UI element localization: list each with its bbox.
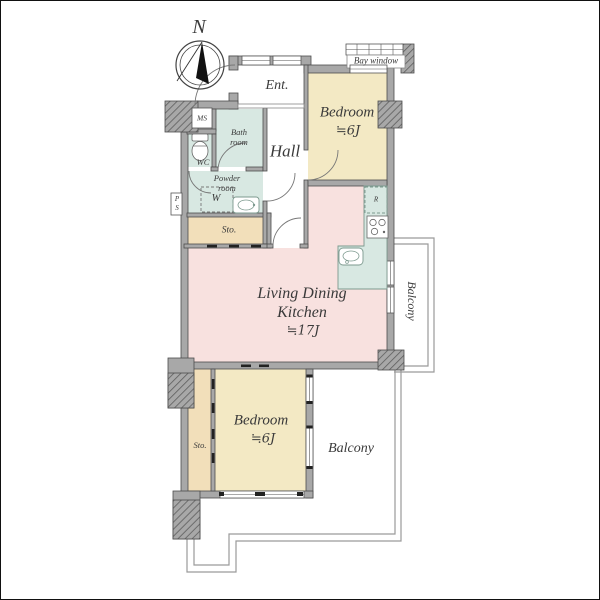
- bedroom-bottom-floor: [215, 369, 306, 491]
- wall-hall-bottom-b: [300, 244, 308, 248]
- washbasin-icon: [233, 197, 259, 213]
- ldk-label-line2: Kitchen: [277, 305, 327, 321]
- balcony-right-label: Balcony: [406, 281, 418, 320]
- wall-powder-top-a: [211, 167, 218, 171]
- wall-bedroom-top: [304, 65, 350, 73]
- wall-wc-bath: [212, 134, 216, 167]
- floor-plan-canvas: N Bay window Ent. Bedroom ≒6J Hall MS Ba…: [0, 0, 600, 600]
- wall-storage-right: [267, 213, 271, 248]
- pipe-space-label: PS: [173, 195, 180, 213]
- powder-room-label-line2: room: [218, 184, 236, 193]
- threshold-entrance-hall: [238, 104, 304, 108]
- balcony-bottom-label: Balcony: [328, 442, 374, 456]
- hall-label: Hall: [270, 143, 300, 160]
- compass-north-label: N: [192, 17, 205, 37]
- storage-upper-label: Sto.: [222, 226, 237, 236]
- wall-ldk-bottom: [184, 362, 394, 369]
- wall-hall-bedroom-b: [304, 180, 308, 248]
- ldk-label-line1: Living Dining: [257, 286, 346, 302]
- wall-entrance-left-stub-a: [229, 56, 238, 70]
- powder-room-label-line1: Powder: [214, 174, 240, 183]
- washer-space-label: W: [212, 194, 221, 205]
- wall-hall-left-b: [263, 201, 267, 244]
- column-right-bedroom-icon: [378, 101, 402, 128]
- bathroom-label-line1: Bath: [231, 128, 247, 137]
- hall-floor: [267, 108, 304, 244]
- wall-hall-left-a: [263, 108, 267, 171]
- kitchen-sink-icon: [339, 248, 363, 265]
- stove-icon: [367, 216, 388, 238]
- wall-bedroom-ldk: [308, 180, 387, 186]
- bedroom-bottom-size: ≒6J: [251, 433, 275, 446]
- bedroom-top-size: ≒6J: [336, 125, 360, 138]
- wall-powder-bottom: [187, 213, 271, 217]
- refrigerator-space-label: R: [374, 197, 378, 204]
- bedroom-bottom-name: Bedroom: [234, 414, 288, 429]
- bedroom-top-name: Bedroom: [320, 106, 374, 121]
- wall-ms-right: [212, 109, 216, 131]
- column-ldk-corner-icon: [378, 350, 404, 370]
- bathroom-label-line2: room: [230, 138, 248, 147]
- storage-lower-label: Sto.: [194, 441, 207, 450]
- ldk-size-label: ≒17J: [287, 325, 320, 338]
- entrance-label: Ent.: [266, 79, 289, 93]
- wall-hall-bedroom-a: [304, 65, 308, 150]
- meter-space-label: MS: [197, 114, 207, 122]
- column-left-hatch-icon: [168, 373, 194, 408]
- bay-window-label: Bay window: [354, 57, 398, 66]
- wall-powder-top-b: [246, 167, 263, 171]
- column-bottomleft-hatch-icon: [173, 500, 200, 539]
- compass-icon: [176, 41, 224, 89]
- wc-label: WC: [197, 158, 210, 167]
